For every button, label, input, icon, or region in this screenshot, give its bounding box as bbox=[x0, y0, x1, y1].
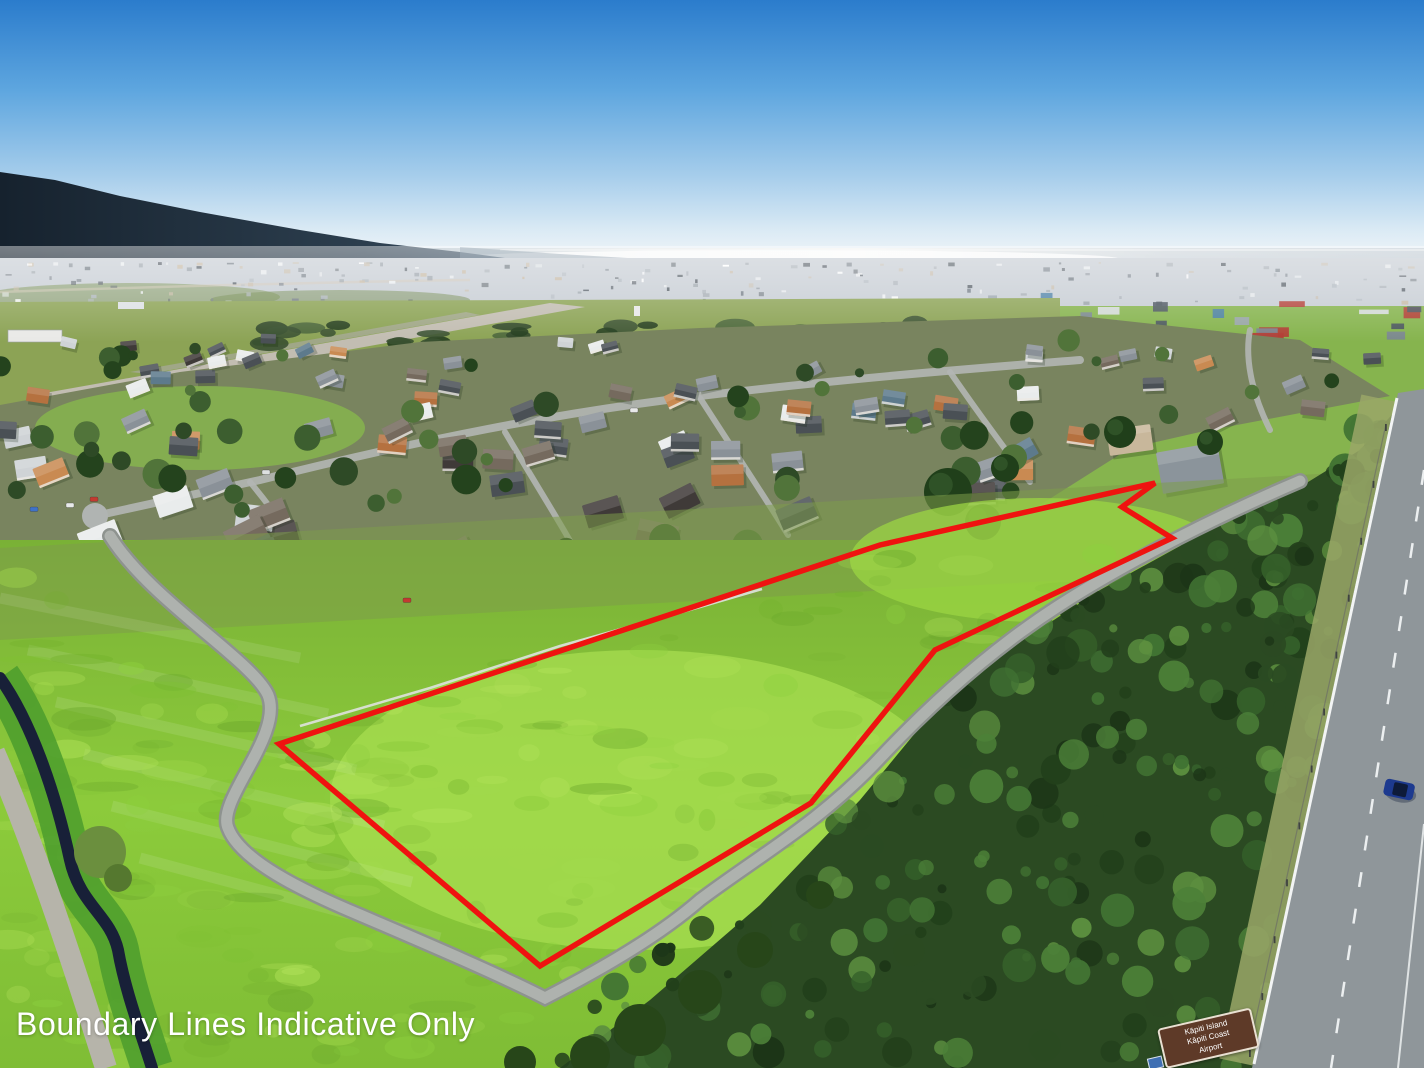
aerial-photo-scene bbox=[0, 0, 1424, 1068]
aerial-photo: Boundary Lines Indicative Only Kāpiti Is… bbox=[0, 0, 1424, 1068]
boundary-disclaimer-text: Boundary Lines Indicative Only bbox=[16, 1006, 475, 1043]
aerial-haze bbox=[0, 246, 1424, 342]
blue-sign bbox=[1147, 1055, 1164, 1068]
